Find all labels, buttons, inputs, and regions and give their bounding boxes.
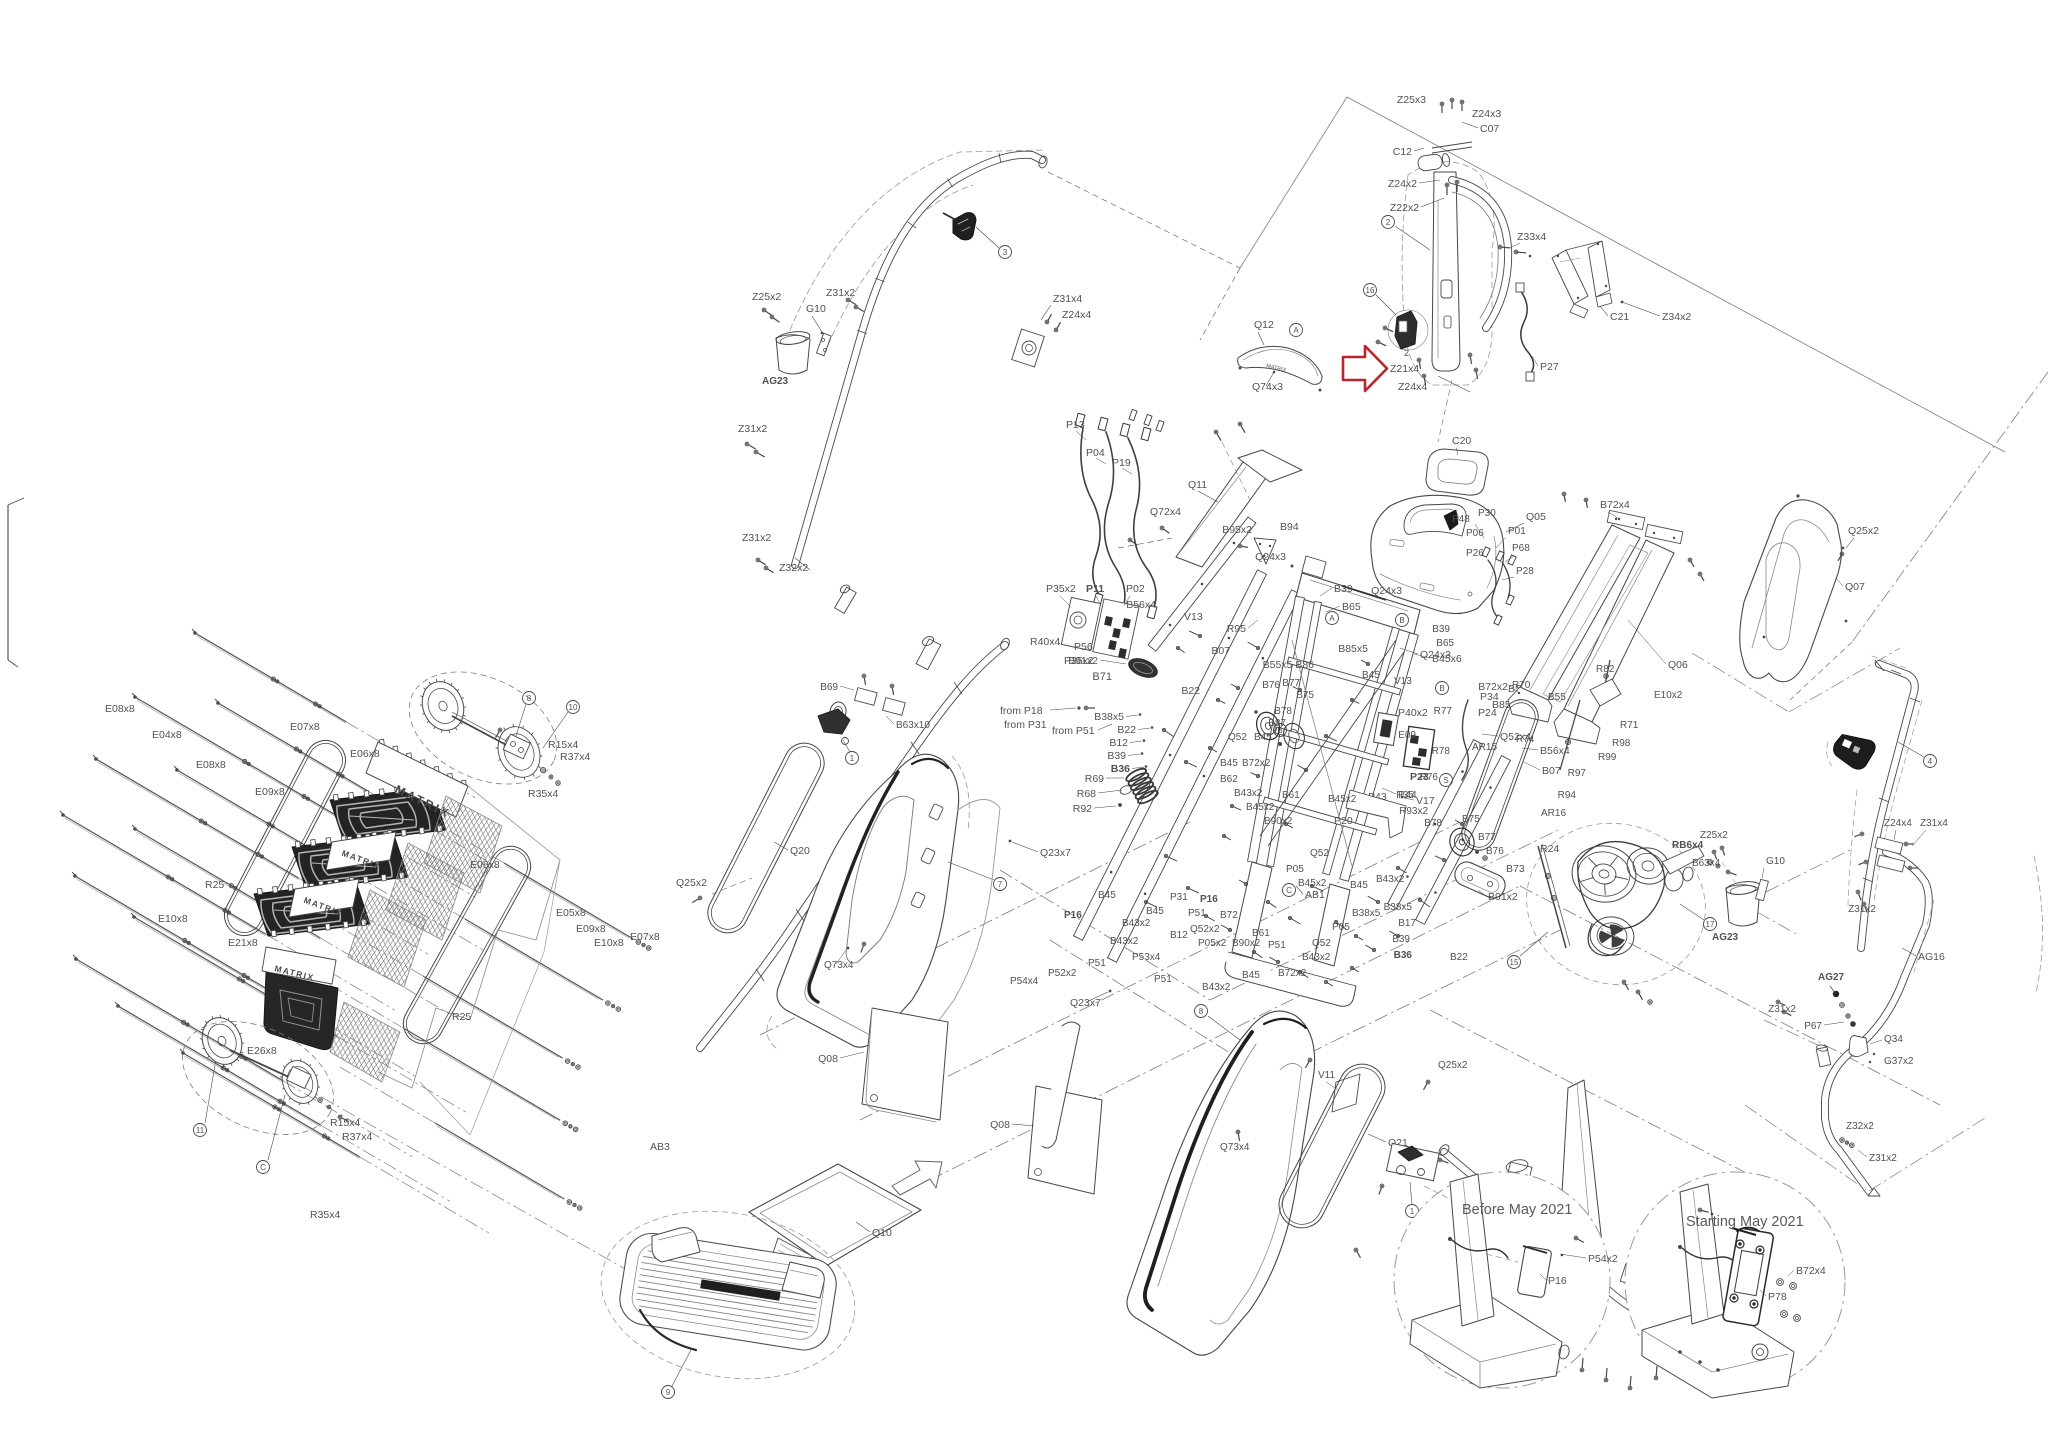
svg-text:R35x4: R35x4 <box>528 788 559 800</box>
svg-text:P35x2: P35x2 <box>1046 583 1076 595</box>
svg-text:R68: R68 <box>1077 788 1096 800</box>
svg-text:P20: P20 <box>1334 815 1353 827</box>
svg-text:from P18: from P18 <box>1000 705 1043 717</box>
svg-text:R35x4: R35x4 <box>310 1209 341 1221</box>
svg-text:B43x2: B43x2 <box>1110 936 1139 947</box>
svg-text:B07: B07 <box>1211 645 1230 657</box>
svg-text:Q20: Q20 <box>790 845 810 857</box>
svg-text:B76: B76 <box>1262 680 1280 691</box>
svg-text:P16: P16 <box>1548 1275 1567 1287</box>
svg-text:Before May 2021: Before May 2021 <box>1462 1202 1572 1218</box>
svg-text:B72x2: B72x2 <box>1242 758 1271 769</box>
svg-text:R76: R76 <box>1420 772 1439 783</box>
svg-text:Z25x2: Z25x2 <box>1700 830 1728 841</box>
svg-text:R15x4: R15x4 <box>548 739 579 751</box>
svg-text:B45: B45 <box>1254 732 1272 743</box>
svg-text:B87: B87 <box>1268 718 1286 729</box>
svg-text:E07x8: E07x8 <box>290 721 320 733</box>
svg-text:C12: C12 <box>1393 146 1412 158</box>
svg-text:B: B <box>1399 616 1404 625</box>
svg-text:B45x2: B45x2 <box>1328 794 1357 805</box>
svg-text:G37x2: G37x2 <box>1884 1056 1914 1067</box>
svg-text:B38x5: B38x5 <box>1384 902 1413 913</box>
svg-text:15: 15 <box>1510 958 1519 967</box>
svg-text:Q07: Q07 <box>1845 581 1865 593</box>
svg-text:Z22x2: Z22x2 <box>1390 202 1419 214</box>
svg-text:P05x2: P05x2 <box>1198 938 1227 949</box>
svg-text:E26x8: E26x8 <box>247 1045 277 1057</box>
svg-text:Z25x2: Z25x2 <box>752 291 781 303</box>
svg-text:P01: P01 <box>1508 526 1526 537</box>
svg-text:R71: R71 <box>1620 720 1639 731</box>
svg-text:P51: P51 <box>1154 974 1172 985</box>
svg-text:11: 11 <box>196 1126 205 1135</box>
svg-text:A: A <box>1293 326 1299 335</box>
svg-text:Z31x2: Z31x2 <box>1869 1153 1897 1164</box>
svg-text:B90x2: B90x2 <box>1232 938 1261 949</box>
svg-text:AB3: AB3 <box>650 1141 670 1153</box>
svg-text:P04: P04 <box>1086 447 1105 459</box>
svg-text:E09: E09 <box>1398 730 1416 741</box>
svg-text:B78: B78 <box>1274 706 1292 717</box>
svg-text:B45x2: B45x2 <box>1246 802 1275 813</box>
svg-text:B22: B22 <box>1117 724 1136 736</box>
svg-text:G10: G10 <box>806 303 826 315</box>
svg-text:B73: B73 <box>1506 863 1525 875</box>
svg-text:R40x4: R40x4 <box>1030 636 1061 648</box>
svg-text:P31: P31 <box>1170 892 1188 903</box>
svg-text:B43x2: B43x2 <box>1302 952 1331 963</box>
svg-text:Z25x3: Z25x3 <box>1397 94 1426 106</box>
svg-text:R94: R94 <box>1558 790 1577 801</box>
svg-text:P27: P27 <box>1540 361 1559 373</box>
svg-text:B72x4: B72x4 <box>1600 499 1630 511</box>
svg-text:AG23: AG23 <box>762 376 789 387</box>
svg-text:B91x2: B91x2 <box>1068 655 1098 667</box>
svg-text:E09x8: E09x8 <box>255 786 285 798</box>
svg-text:P67: P67 <box>1804 1021 1822 1032</box>
svg-text:B38x5: B38x5 <box>1352 908 1381 919</box>
svg-text:B77: B77 <box>1478 832 1496 843</box>
svg-text:C20: C20 <box>1452 435 1471 447</box>
svg-text:Z31x2: Z31x2 <box>1848 904 1876 915</box>
svg-text:P54x4: P54x4 <box>1010 976 1039 987</box>
svg-text:B85x5: B85x5 <box>1338 643 1368 655</box>
svg-text:E09x8: E09x8 <box>576 923 606 935</box>
svg-text:C: C <box>260 1163 266 1172</box>
svg-text:B39: B39 <box>1334 583 1353 595</box>
svg-text:Q73x4: Q73x4 <box>824 960 854 971</box>
svg-text:Q11: Q11 <box>1188 479 1207 491</box>
svg-text:4: 4 <box>1928 757 1933 766</box>
svg-text:B45: B45 <box>1362 670 1380 681</box>
svg-text:Q73x4: Q73x4 <box>1220 1142 1250 1153</box>
svg-text:Z24x4: Z24x4 <box>1062 309 1091 321</box>
svg-text:G10: G10 <box>1766 856 1785 867</box>
svg-text:Q05: Q05 <box>1526 511 1546 523</box>
svg-text:P13: P13 <box>1066 419 1085 431</box>
svg-text:E05x8: E05x8 <box>556 907 586 919</box>
svg-text:P16: P16 <box>1200 894 1218 905</box>
svg-text:P68: P68 <box>1512 543 1530 554</box>
svg-text:R37x4: R37x4 <box>342 1131 373 1143</box>
svg-text:E08x8: E08x8 <box>105 703 135 715</box>
svg-text:B63x4: B63x4 <box>1692 858 1721 869</box>
svg-text:Q10: Q10 <box>872 1227 892 1239</box>
svg-text:B39: B39 <box>1107 750 1126 762</box>
svg-text:P35: P35 <box>1396 790 1414 801</box>
svg-text:R15x4: R15x4 <box>330 1117 361 1129</box>
svg-text:E06x8: E06x8 <box>470 859 500 871</box>
svg-text:B72x2: B72x2 <box>1278 968 1307 979</box>
svg-text:B95x2: B95x2 <box>1222 524 1252 536</box>
svg-text:B75: B75 <box>1296 690 1314 701</box>
svg-text:B38x5: B38x5 <box>1094 711 1124 723</box>
svg-text:Q08: Q08 <box>990 1119 1010 1131</box>
svg-text:P26: P26 <box>1466 548 1484 559</box>
svg-text:B91x2: B91x2 <box>1488 891 1518 903</box>
svg-text:Z21x4: Z21x4 <box>1390 363 1419 375</box>
svg-text:C21: C21 <box>1610 311 1629 323</box>
svg-text:R99: R99 <box>1598 752 1617 763</box>
svg-text:R37x4: R37x4 <box>560 751 591 763</box>
svg-text:R74: R74 <box>1516 734 1535 745</box>
svg-text:R98: R98 <box>1612 738 1631 749</box>
svg-text:Z24x2: Z24x2 <box>1388 178 1417 190</box>
svg-text:B78: B78 <box>1424 818 1442 829</box>
svg-text:RB6x4: RB6x4 <box>1672 840 1704 851</box>
svg-text:P54x2: P54x2 <box>1588 1253 1618 1265</box>
svg-text:R25: R25 <box>205 879 224 891</box>
svg-text:B12: B12 <box>1109 737 1128 749</box>
svg-text:B75: B75 <box>1462 814 1480 825</box>
svg-text:P48: P48 <box>1452 514 1470 525</box>
svg-text:Q23x7: Q23x7 <box>1040 847 1071 859</box>
svg-text:P02: P02 <box>1126 583 1145 595</box>
svg-text:AG27: AG27 <box>1818 972 1845 983</box>
svg-text:R25: R25 <box>452 1011 471 1023</box>
svg-text:Q34: Q34 <box>1884 1034 1903 1045</box>
svg-text:Q52x2: Q52x2 <box>1190 924 1220 935</box>
svg-text:Z31x4: Z31x4 <box>1920 818 1948 829</box>
svg-text:Q52: Q52 <box>1228 732 1247 743</box>
svg-text:Z32x2: Z32x2 <box>779 562 808 574</box>
svg-text:from P31: from P31 <box>1004 719 1047 731</box>
svg-text:B12: B12 <box>1170 930 1188 941</box>
svg-text:Q08: Q08 <box>818 1053 838 1065</box>
svg-text:Q25x2: Q25x2 <box>676 877 707 889</box>
svg-text:B45: B45 <box>1220 758 1238 769</box>
svg-text:B22: B22 <box>1450 952 1468 963</box>
svg-text:R92: R92 <box>1073 803 1092 815</box>
svg-text:P30: P30 <box>1478 508 1496 519</box>
svg-text:V13: V13 <box>1394 676 1412 687</box>
svg-text:16: 16 <box>1366 286 1375 295</box>
svg-text:B45: B45 <box>1098 890 1116 901</box>
svg-text:P53x4: P53x4 <box>1132 952 1161 963</box>
svg-text:R24: R24 <box>1540 843 1559 855</box>
svg-text:B45: B45 <box>1146 906 1164 917</box>
svg-text:P28: P28 <box>1516 566 1534 577</box>
svg-text:B55x5 B86: B55x5 B86 <box>1263 659 1315 671</box>
svg-text:B61: B61 <box>1282 790 1300 801</box>
svg-text:B07: B07 <box>1542 765 1561 777</box>
svg-text:Q24x3: Q24x3 <box>1255 551 1286 563</box>
svg-text:V11: V11 <box>1318 1070 1335 1081</box>
svg-text:B94: B94 <box>1280 521 1299 533</box>
svg-text:B45x6: B45x6 <box>1432 653 1462 665</box>
svg-text:E07x8: E07x8 <box>630 931 660 943</box>
svg-text:Starting May 2021: Starting May 2021 <box>1686 1214 1804 1230</box>
svg-text:Q52: Q52 <box>1310 848 1329 859</box>
svg-text:E08x8: E08x8 <box>196 759 226 771</box>
svg-text:R69: R69 <box>1085 773 1104 785</box>
svg-text:P56: P56 <box>1074 641 1093 653</box>
svg-text:Z33x4: Z33x4 <box>1517 231 1546 243</box>
svg-text:3: 3 <box>1003 248 1008 257</box>
svg-text:1: 1 <box>1410 1207 1415 1216</box>
svg-text:B45x2: B45x2 <box>1298 878 1327 889</box>
svg-text:B43x2: B43x2 <box>1376 874 1405 885</box>
svg-text:E04x8: E04x8 <box>152 729 182 741</box>
svg-text:B63x10: B63x10 <box>896 720 930 731</box>
svg-text:E21x8: E21x8 <box>228 937 258 949</box>
svg-text:P51: P51 <box>1088 958 1106 969</box>
svg-text:B45: B45 <box>1242 970 1260 981</box>
svg-text:from P51: from P51 <box>1052 725 1095 737</box>
svg-text:2: 2 <box>1386 218 1391 227</box>
svg-text:Q25x2: Q25x2 <box>1848 525 1879 537</box>
svg-text:Z31x2: Z31x2 <box>826 287 855 299</box>
svg-text:P05: P05 <box>1332 922 1350 933</box>
svg-text:Z34x2: Z34x2 <box>1662 311 1691 323</box>
svg-text:E06x8: E06x8 <box>350 748 380 760</box>
svg-text:1: 1 <box>850 754 855 763</box>
svg-text:AG16: AG16 <box>1918 951 1945 963</box>
svg-text:Z32x2: Z32x2 <box>1846 1121 1874 1132</box>
svg-text:R82: R82 <box>1596 664 1615 675</box>
svg-text:P16: P16 <box>1064 910 1082 921</box>
svg-text:B72x4: B72x4 <box>1796 1265 1826 1277</box>
svg-text:AR16: AR16 <box>1541 808 1566 819</box>
svg-text:B65: B65 <box>1436 638 1454 649</box>
svg-text:2: 2 <box>1404 348 1409 358</box>
svg-text:C07: C07 <box>1480 123 1499 135</box>
svg-text:B39: B39 <box>1432 624 1450 635</box>
svg-text:B76: B76 <box>1486 846 1504 857</box>
svg-text:Q25x2: Q25x2 <box>1438 1060 1468 1071</box>
svg-text:B62: B62 <box>1220 774 1238 785</box>
svg-text:Q06: Q06 <box>1668 659 1688 671</box>
svg-text:R70: R70 <box>1512 680 1531 691</box>
svg-text:P06: P06 <box>1466 528 1484 539</box>
svg-text:B22: B22 <box>1181 685 1200 697</box>
svg-text:B77: B77 <box>1282 678 1300 689</box>
svg-text:E10x2: E10x2 <box>1654 690 1683 701</box>
svg-text:B69: B69 <box>820 682 838 693</box>
svg-text:E10x8: E10x8 <box>158 913 188 925</box>
svg-text:B17: B17 <box>1398 918 1416 929</box>
svg-text:Z31x4: Z31x4 <box>1053 293 1082 305</box>
svg-text:Q52: Q52 <box>1312 938 1331 949</box>
svg-text:R77: R77 <box>1434 706 1453 717</box>
svg-text:A: A <box>1329 614 1335 623</box>
svg-text:AG23: AG23 <box>1712 932 1739 943</box>
svg-text:Z24x3: Z24x3 <box>1472 108 1501 120</box>
svg-text:Z31x2: Z31x2 <box>742 532 771 544</box>
svg-text:V13: V13 <box>1184 611 1203 623</box>
svg-text:R97: R97 <box>1568 768 1587 779</box>
svg-text:P19: P19 <box>1112 457 1131 469</box>
svg-text:B43x2: B43x2 <box>1234 788 1263 799</box>
svg-text:B43x2: B43x2 <box>1122 918 1151 929</box>
svg-text:8: 8 <box>527 694 532 703</box>
svg-text:B72x2: B72x2 <box>1478 681 1508 693</box>
svg-text:B56x4: B56x4 <box>1126 599 1156 611</box>
svg-text:AR15: AR15 <box>1472 742 1497 753</box>
svg-text:P40x2: P40x2 <box>1398 707 1428 719</box>
svg-text:B43x2: B43x2 <box>1202 982 1231 993</box>
svg-text:E10x8: E10x8 <box>594 937 624 949</box>
svg-text:P78: P78 <box>1768 1291 1787 1303</box>
svg-text:10: 10 <box>569 703 578 712</box>
svg-text:Q23x7: Q23x7 <box>1070 997 1101 1009</box>
svg-text:C: C <box>1286 886 1292 895</box>
svg-text:P05: P05 <box>1286 864 1304 875</box>
svg-text:B61: B61 <box>1252 928 1270 939</box>
svg-text:7: 7 <box>998 880 1003 889</box>
svg-text:B72: B72 <box>1220 910 1238 921</box>
svg-text:R95: R95 <box>1227 623 1246 635</box>
svg-text:B45: B45 <box>1350 880 1368 891</box>
svg-text:B90x2: B90x2 <box>1264 816 1293 827</box>
svg-text:B: B <box>1439 684 1444 693</box>
svg-text:Q72x4: Q72x4 <box>1150 506 1181 518</box>
svg-text:Z31x2: Z31x2 <box>738 423 767 435</box>
svg-text:B65: B65 <box>1342 601 1361 613</box>
svg-text:P11: P11 <box>1086 583 1104 595</box>
svg-text:R78: R78 <box>1432 746 1451 757</box>
svg-text:P51: P51 <box>1268 940 1286 951</box>
svg-text:Z24x4: Z24x4 <box>1884 818 1912 829</box>
svg-text:P52x2: P52x2 <box>1048 968 1077 979</box>
svg-text:B71: B71 <box>1092 671 1112 683</box>
svg-text:17: 17 <box>1706 920 1715 929</box>
svg-text:Z24x4: Z24x4 <box>1398 381 1427 393</box>
svg-text:P51: P51 <box>1188 908 1206 919</box>
svg-text:B36: B36 <box>1394 950 1413 961</box>
svg-text:R93x2: R93x2 <box>1399 806 1428 817</box>
svg-text:B39: B39 <box>1392 934 1410 945</box>
svg-text:8: 8 <box>1199 1007 1204 1016</box>
svg-text:Q12: Q12 <box>1254 319 1274 331</box>
svg-text:9: 9 <box>666 1388 671 1397</box>
svg-text:Q24x3: Q24x3 <box>1371 585 1402 597</box>
svg-text:S: S <box>1443 776 1448 785</box>
svg-text:B36: B36 <box>1111 763 1130 775</box>
svg-text:B55: B55 <box>1548 692 1566 703</box>
